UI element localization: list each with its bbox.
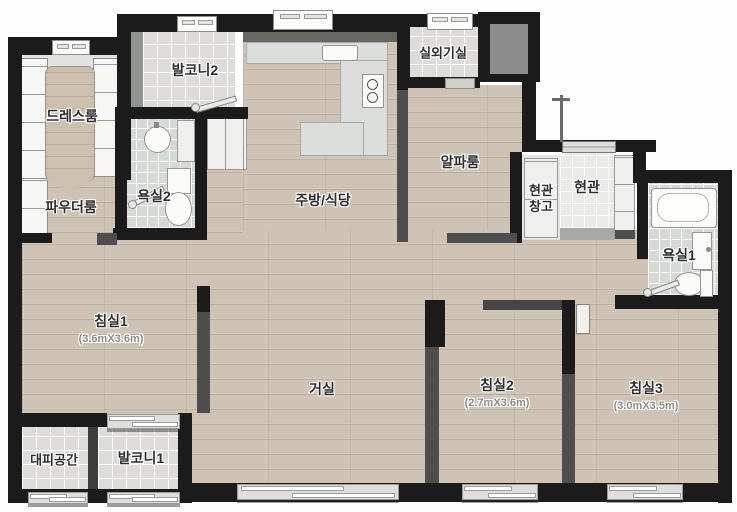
label-entrance-storage: 현관창고 xyxy=(524,183,558,216)
wall-bath1-left xyxy=(637,183,648,259)
label-balcony1: 발코니1 xyxy=(118,448,164,468)
wall-bath1-bottom xyxy=(615,295,732,309)
wall-top-balcony-kitchen xyxy=(117,14,408,32)
label-balcony2: 발코니2 xyxy=(172,60,218,80)
window-escape xyxy=(28,492,88,504)
wall-right xyxy=(718,170,732,503)
label-alpha-room: 알파룸 xyxy=(441,152,480,172)
wall-balcony2-left-gray xyxy=(131,30,143,115)
window-box-dress xyxy=(52,40,90,55)
wall-bath2-bottom xyxy=(113,228,207,240)
balcony2-hanger-end xyxy=(191,103,200,112)
bedroom3-door-leaf xyxy=(576,304,590,334)
powder-cabinet xyxy=(20,178,48,237)
bath2-door-knob xyxy=(128,200,137,209)
label-outdoor-unit-room: 실외기실 xyxy=(419,43,467,62)
dim-bedroom2: (2.7mX3.6m) xyxy=(465,397,530,409)
label-kitchen-dining: 주방/식당 xyxy=(295,190,350,210)
kitchen-peninsula xyxy=(300,122,364,156)
front-door xyxy=(562,141,616,153)
wall-powder-stub-gray xyxy=(97,233,117,245)
window-bedroom2 xyxy=(462,484,538,500)
wall-alpha-bottom xyxy=(447,233,517,243)
wall-balcony2-bath2 xyxy=(115,107,248,119)
wall-kitchen-alpha-divider-top xyxy=(397,28,408,90)
label-bathroom1: 욕실1 xyxy=(662,245,696,265)
window-box-kitchen xyxy=(273,10,333,30)
label-living-room: 거실 xyxy=(309,379,335,399)
duct-box xyxy=(490,24,528,74)
hall-cabinet xyxy=(207,118,247,170)
vent-pole-cross xyxy=(552,98,570,101)
wall-bedroom1-right-cap xyxy=(197,286,210,312)
window-box-balcony2 xyxy=(177,16,217,32)
wall-hall-stub xyxy=(615,230,635,239)
kitchen-sink xyxy=(322,45,358,61)
label-bedroom1: 침실1 xyxy=(94,311,128,331)
cooktop-stove xyxy=(362,74,384,108)
bath1-door-knob xyxy=(643,288,652,297)
wall-bedroom23-divider xyxy=(562,374,575,483)
wall-bedroom2-left xyxy=(425,347,439,483)
label-escape-space: 대피공간 xyxy=(30,450,78,469)
label-bedroom2: 침실2 xyxy=(480,375,514,395)
dress-closet-left xyxy=(20,58,48,179)
wall-bedroom1-bottom xyxy=(22,413,107,427)
dim-bedroom1: (3.6mX3.6m) xyxy=(79,333,144,345)
label-powder-room: 파우더룸 xyxy=(45,197,97,217)
wall-bedroom23-divider-cap xyxy=(562,300,575,374)
vent-pole-icon xyxy=(560,95,563,142)
window-bedroom3 xyxy=(607,484,683,500)
wall-bedroom1-right xyxy=(197,312,210,413)
bath2-shelf xyxy=(177,120,195,162)
wall-bedroom2-pillar xyxy=(425,300,445,347)
label-dress-room: 드레스룸 xyxy=(46,106,98,126)
bathtub xyxy=(651,188,717,228)
wall-bath2-left xyxy=(115,107,127,240)
entrance-threshold xyxy=(560,228,614,240)
washbasin-bath2 xyxy=(144,126,171,153)
window-living xyxy=(237,484,399,500)
window-balcony1 xyxy=(107,492,180,504)
wall-powder-bottom-stub xyxy=(18,233,52,243)
wall-bath2-right xyxy=(195,107,207,240)
shoe-cabinet xyxy=(614,155,635,239)
wall-left xyxy=(8,37,22,503)
wall-kitchen-alpha-divider xyxy=(397,90,408,242)
label-entrance: 현관 xyxy=(574,177,600,197)
toilet-tank-bath1 xyxy=(700,270,713,297)
window-box-outdoor-unit xyxy=(427,13,473,30)
outdoor-unit-door xyxy=(445,78,475,89)
faucet-bath1 xyxy=(706,247,711,252)
wall-storage-left xyxy=(510,152,522,243)
label-bathroom2: 욕실2 xyxy=(137,186,171,206)
wall-escape-balcony-divider xyxy=(88,427,98,493)
faucet-bath2 xyxy=(154,122,159,128)
label-bedroom3: 침실3 xyxy=(629,378,663,398)
window-bedroom1-balcony1 xyxy=(107,414,180,429)
floor-plan: 드레스룸 발코니2 욕실2 파우더룸 주방/식당 실외기실 알파룸 현관창고 현… xyxy=(0,0,737,512)
dim-bedroom3: (3.0mX3.5m) xyxy=(614,400,679,412)
wall-entrance-right-step xyxy=(633,152,646,183)
